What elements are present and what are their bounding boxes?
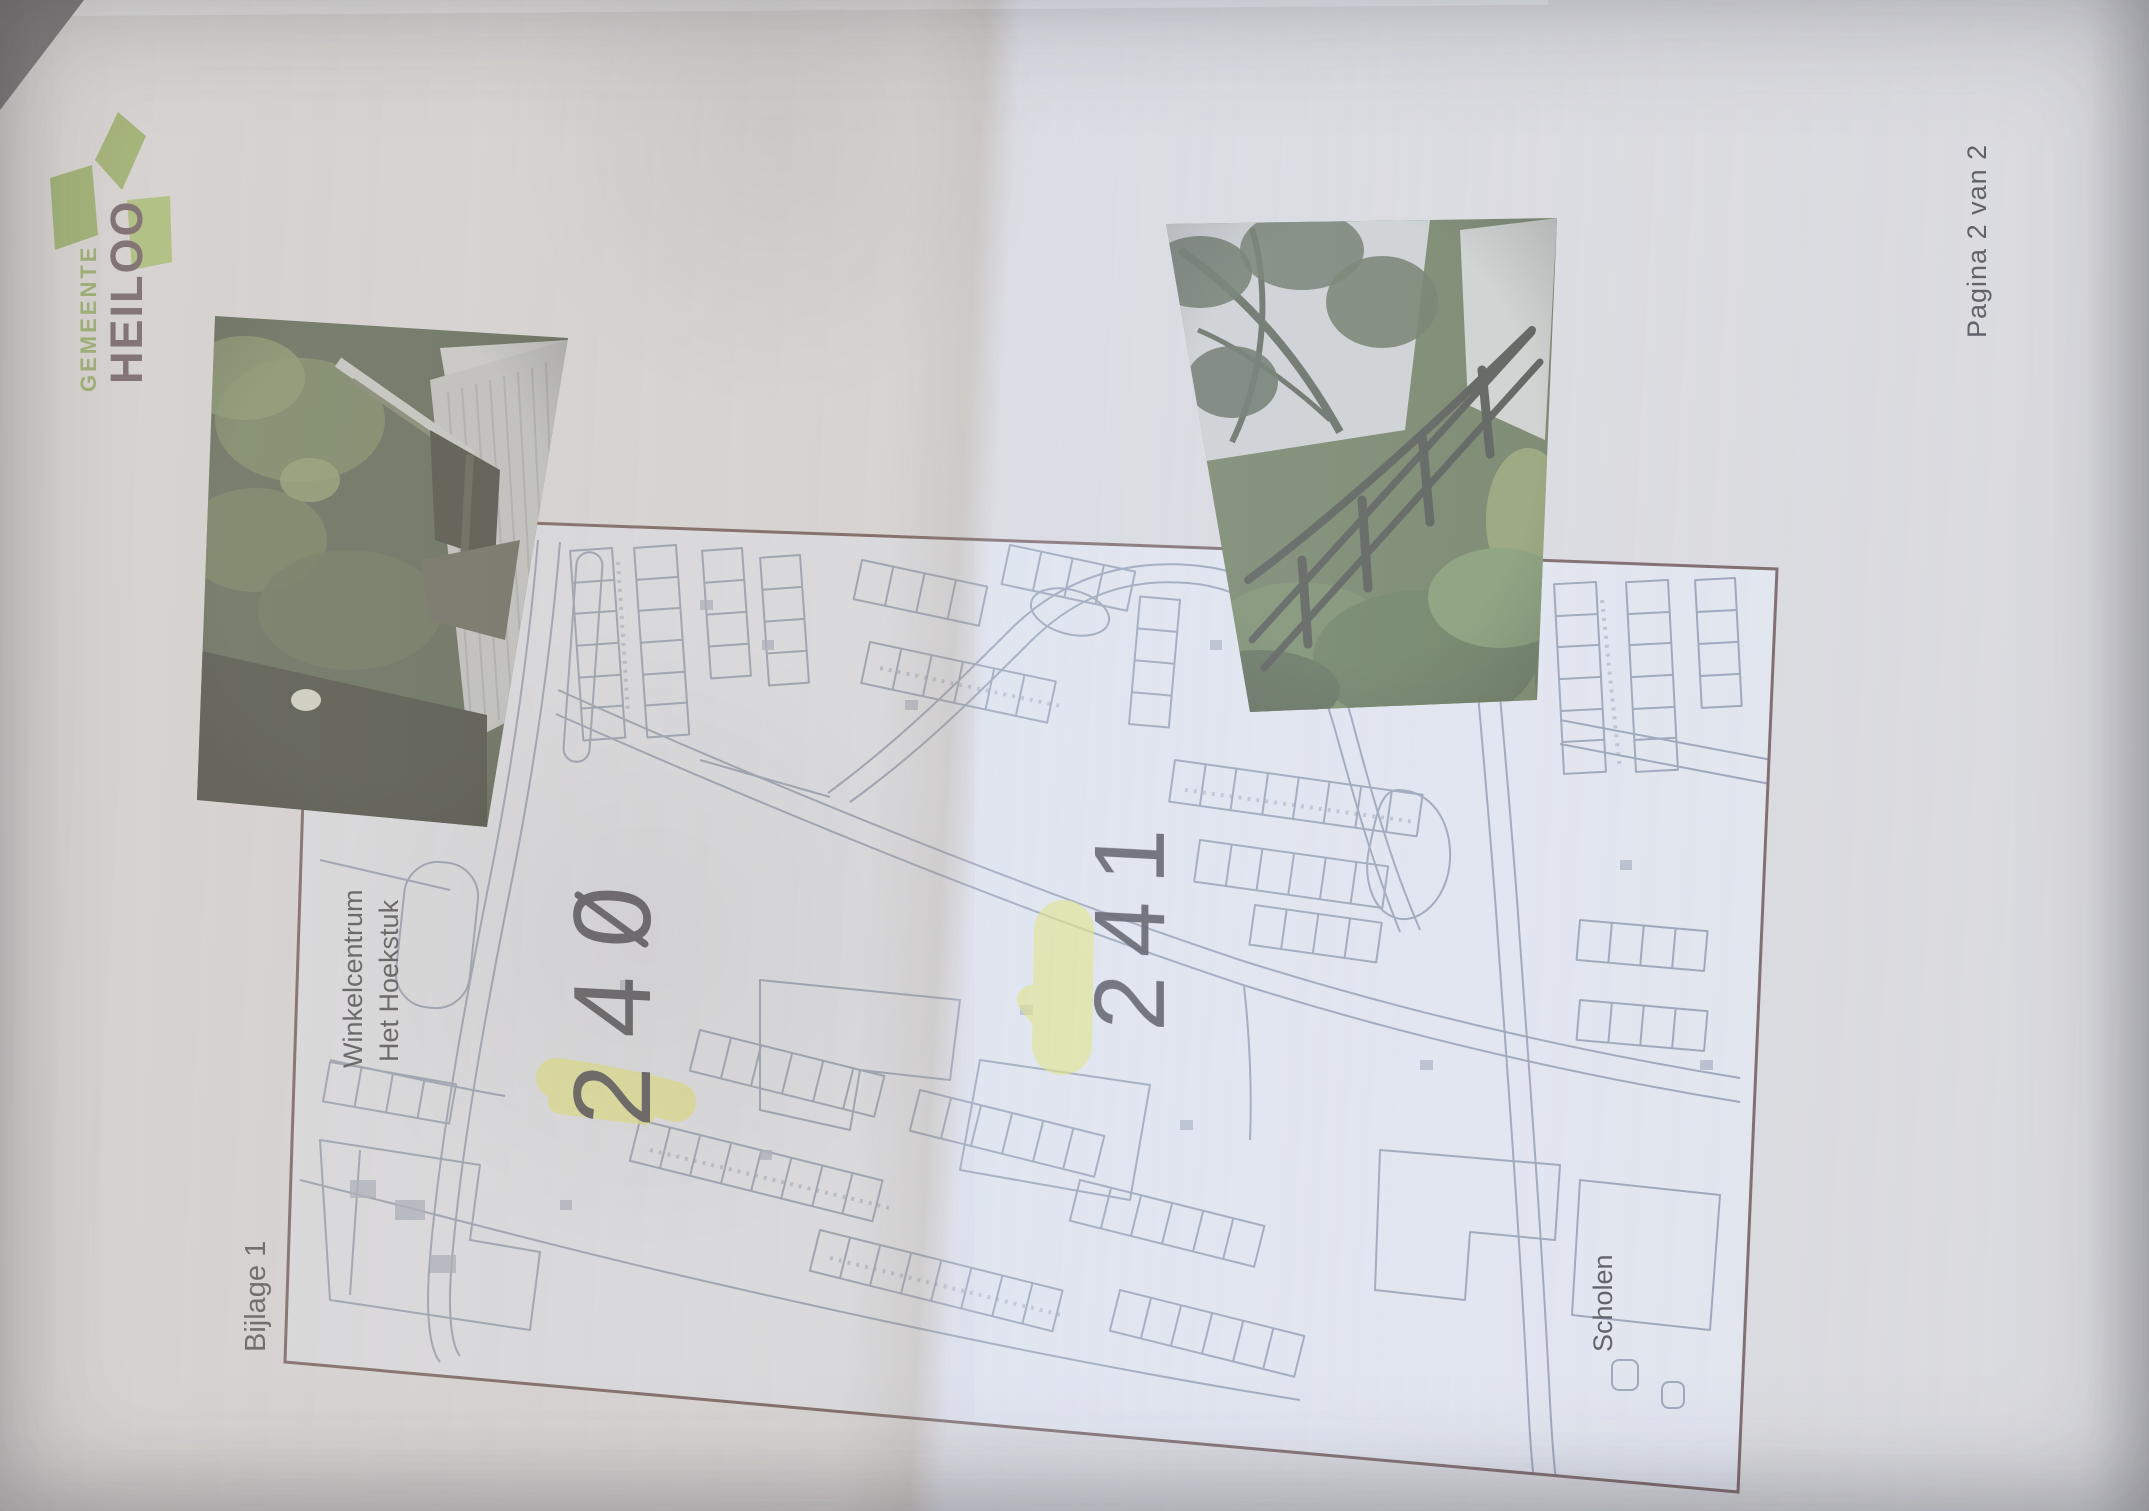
- attachment-label: Bijlage 1: [240, 1241, 273, 1352]
- logo-text-gemeente: GEMEENTE: [76, 245, 101, 392]
- gemeente-heiloo-logo: GEMEENTE HEILOO: [0, 0, 2149, 1511]
- page-number-label: Pagina 2 van 2: [1962, 144, 1993, 338]
- logo-text-heiloo: HEILOO: [101, 199, 152, 384]
- scanned-document-photo: 240 241 Winkelcentrum Het Hoekstuk Schol…: [0, 0, 2149, 1511]
